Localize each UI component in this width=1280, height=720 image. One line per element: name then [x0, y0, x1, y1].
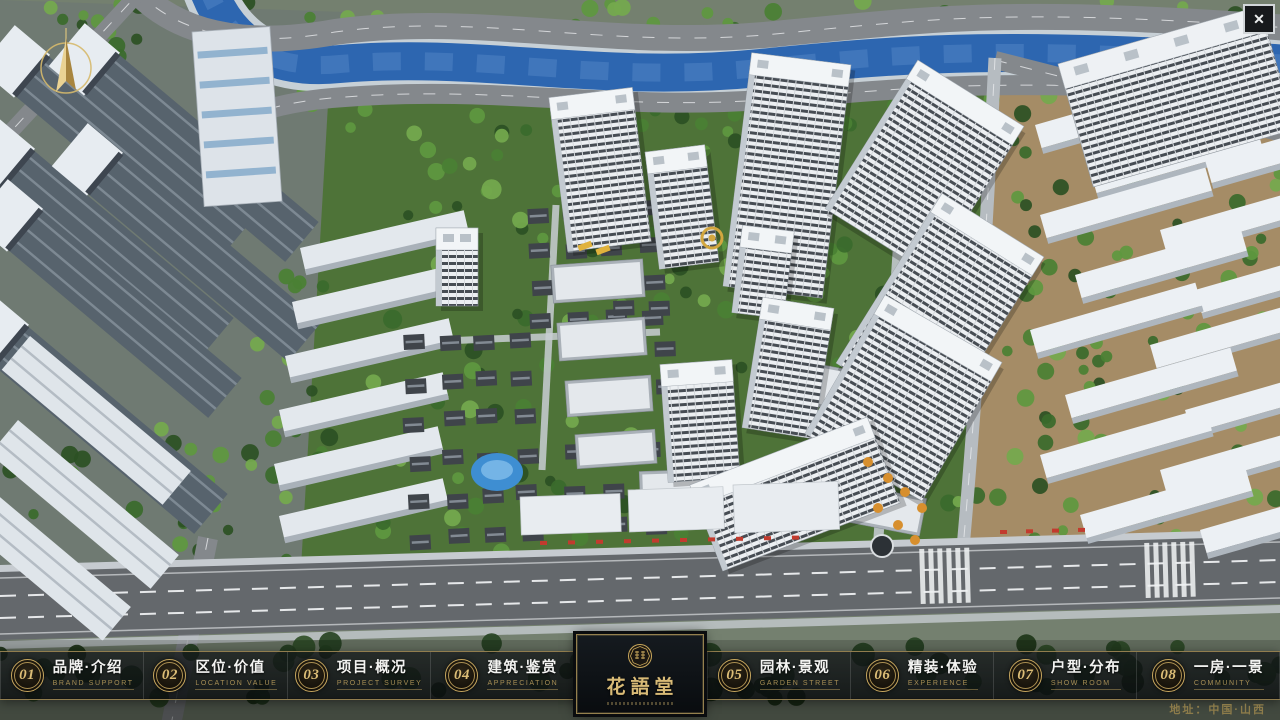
project-address: 地址：中国·山西	[1169, 701, 1266, 717]
nav-badge-08: 08	[1152, 659, 1185, 692]
masterplan-map[interactable]	[0, 0, 1280, 720]
nav-num: 02	[162, 667, 178, 684]
nav-badge-07: 07	[1009, 659, 1042, 692]
nav-item-views[interactable]: 08 一房·一景 COMMUNITY	[1136, 652, 1280, 699]
nav-item-project[interactable]: 03 项目·概况 PROJECT SURVEY	[287, 652, 430, 699]
project-subtitle-line	[607, 702, 673, 705]
nav-label-en: BRAND SUPPORT	[53, 680, 134, 690]
nav-badge-05: 05	[718, 659, 751, 692]
nav-item-architecture[interactable]: 04 建筑·鉴赏 APPRECIATION	[430, 652, 573, 699]
nav-badge-01: 01	[11, 659, 44, 692]
nav-label-en: APPRECIATION	[487, 680, 558, 690]
nav-num: 03	[303, 667, 319, 684]
nav-label-en: LOCATION VALUE	[195, 680, 277, 690]
nav-num: 04	[454, 667, 470, 684]
nav-num: 07	[1017, 667, 1033, 684]
nav-label-zh: 建筑·鉴赏	[487, 661, 557, 677]
nav-item-location[interactable]: 02 区位·价值 LOCATION VALUE	[143, 652, 286, 699]
nav-label-en: PROJECT SURVEY	[337, 680, 423, 690]
project-logo[interactable]: 花語堂	[576, 634, 704, 714]
nav-group-right: 05 园林·景观 GARDEN STREET 06 精装·体验 EXPERIEN…	[707, 652, 1280, 699]
nav-label-en: EXPERIENCE	[908, 680, 978, 690]
nav-item-brand[interactable]: 01 品牌·介绍 BRAND SUPPORT	[0, 652, 143, 699]
nav-label-zh: 园林·景观	[760, 661, 830, 677]
nav-num: 06	[874, 667, 890, 684]
nav-label-zh: 项目·概况	[337, 661, 407, 677]
nav-item-garden[interactable]: 05 园林·景观 GARDEN STREET	[707, 652, 850, 699]
nav-num: 01	[19, 667, 35, 684]
nav-badge-03: 03	[295, 659, 328, 692]
close-button[interactable]: ✕	[1243, 4, 1275, 34]
nav-label-en: GARDEN STREET	[760, 680, 840, 690]
nav-badge-04: 04	[445, 659, 478, 692]
close-icon: ✕	[1253, 11, 1265, 28]
nav-badge-02: 02	[153, 659, 186, 692]
project-name: 花語堂	[601, 672, 678, 699]
nav-item-floorplan[interactable]: 07 户型·分布 SHOW ROOM	[993, 652, 1136, 699]
nav-num: 08	[1160, 667, 1176, 684]
nav-num: 05	[726, 667, 742, 684]
nav-item-interior[interactable]: 06 精装·体验 EXPERIENCE	[850, 652, 993, 699]
nav-group-left: 01 品牌·介绍 BRAND SUPPORT 02 区位·价值 LOCATION…	[0, 652, 573, 699]
nav-label-zh: 品牌·介绍	[53, 661, 123, 677]
seal-emblem-icon	[627, 643, 653, 669]
nav-label-en: SHOW ROOM	[1051, 680, 1121, 690]
nav-label-zh: 精装·体验	[908, 661, 978, 677]
masterplan-viewer: ✕ 01 品牌·介绍 BRAND SUPPORT 02 区位·价值 LOCATI…	[0, 0, 1280, 720]
nav-label-zh: 户型·分布	[1051, 661, 1121, 677]
nav-label-zh: 区位·价值	[195, 661, 265, 677]
nav-label-zh: 一房·一景	[1194, 661, 1264, 677]
nav-badge-06: 06	[866, 659, 899, 692]
nav-label-en: COMMUNITY	[1194, 680, 1264, 690]
